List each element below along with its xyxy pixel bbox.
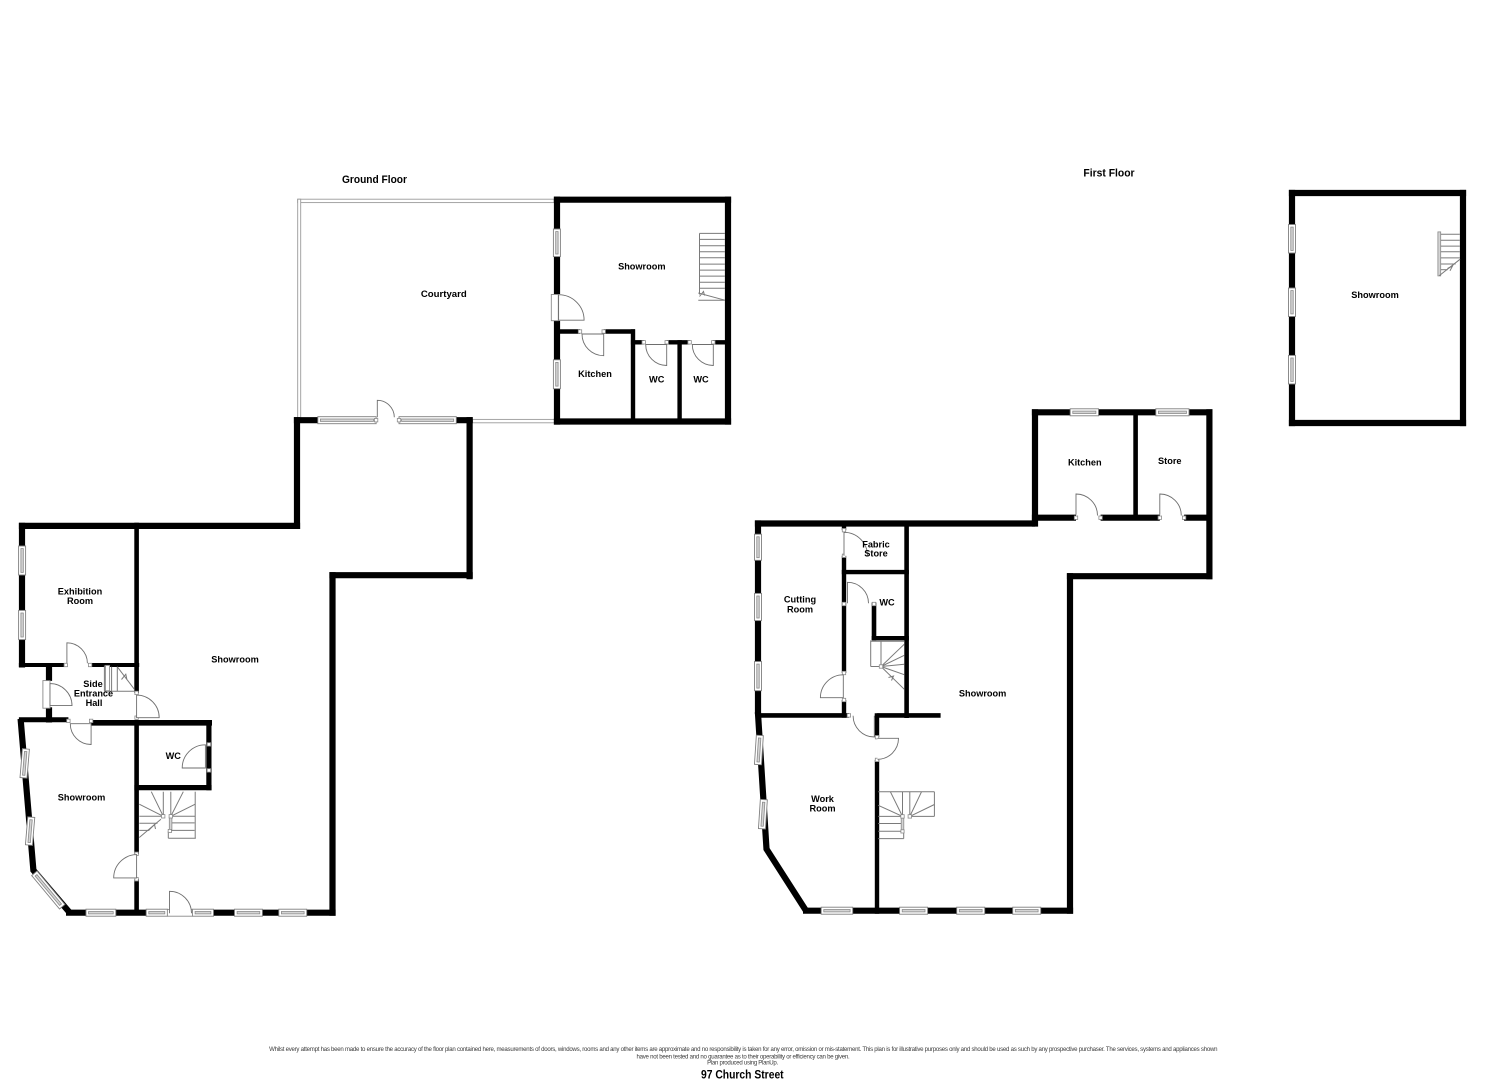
svg-text:Store: Store: [864, 549, 888, 559]
svg-text:Room: Room: [67, 596, 93, 606]
svg-text:Whilst every attempt has been: Whilst every attempt has been made to en…: [269, 1046, 1217, 1053]
svg-text:Entrance: Entrance: [74, 689, 113, 699]
svg-text:Showroom: Showroom: [618, 261, 665, 271]
svg-text:WC: WC: [879, 597, 895, 607]
svg-text:WC: WC: [693, 374, 709, 384]
svg-text:Showroom: Showroom: [1351, 290, 1398, 300]
svg-text:Showroom: Showroom: [58, 792, 105, 802]
svg-text:Ground Floor: Ground Floor: [342, 174, 407, 186]
svg-text:First Floor: First Floor: [1083, 167, 1134, 179]
svg-text:Room: Room: [809, 803, 835, 813]
svg-text:Showroom: Showroom: [959, 688, 1006, 698]
svg-text:Kitchen: Kitchen: [578, 369, 612, 379]
svg-text:Side: Side: [83, 679, 102, 689]
svg-text:Exhibition: Exhibition: [58, 587, 103, 597]
svg-text:Hall: Hall: [86, 698, 103, 708]
svg-text:WC: WC: [649, 374, 665, 384]
svg-text:Work: Work: [811, 794, 835, 804]
svg-text:Courtyard: Courtyard: [421, 289, 467, 300]
svg-text:WC: WC: [166, 751, 182, 761]
svg-text:Store: Store: [1158, 456, 1182, 466]
svg-text:Showroom: Showroom: [211, 654, 258, 664]
svg-text:Plan produced using PlanUp.: Plan produced using PlanUp.: [707, 1059, 778, 1066]
svg-text:Room: Room: [787, 604, 813, 614]
svg-text:Cutting: Cutting: [784, 595, 816, 605]
svg-text:Kitchen: Kitchen: [1068, 457, 1102, 467]
svg-text:97 Church Street: 97 Church Street: [701, 1069, 784, 1080]
